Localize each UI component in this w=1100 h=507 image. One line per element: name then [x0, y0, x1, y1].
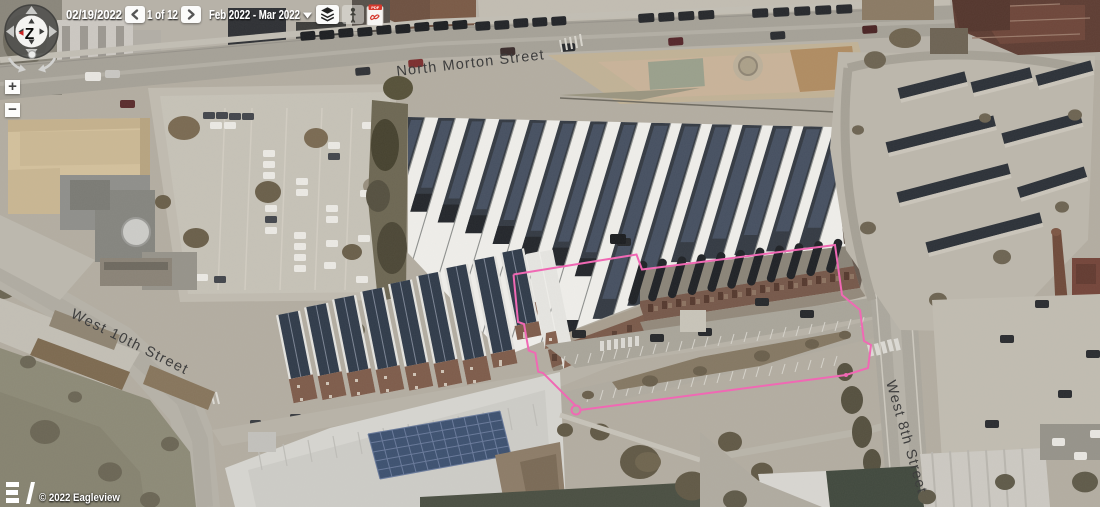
svg-text:02/19/2022: 02/19/2022 — [66, 8, 122, 22]
svg-text:Z: Z — [25, 26, 35, 43]
svg-text:1 of 12: 1 of 12 — [147, 8, 178, 22]
svg-text:PDF: PDF — [371, 5, 380, 10]
svg-text:Feb 2022 - Mar 2022: Feb 2022 - Mar 2022 — [209, 8, 300, 22]
